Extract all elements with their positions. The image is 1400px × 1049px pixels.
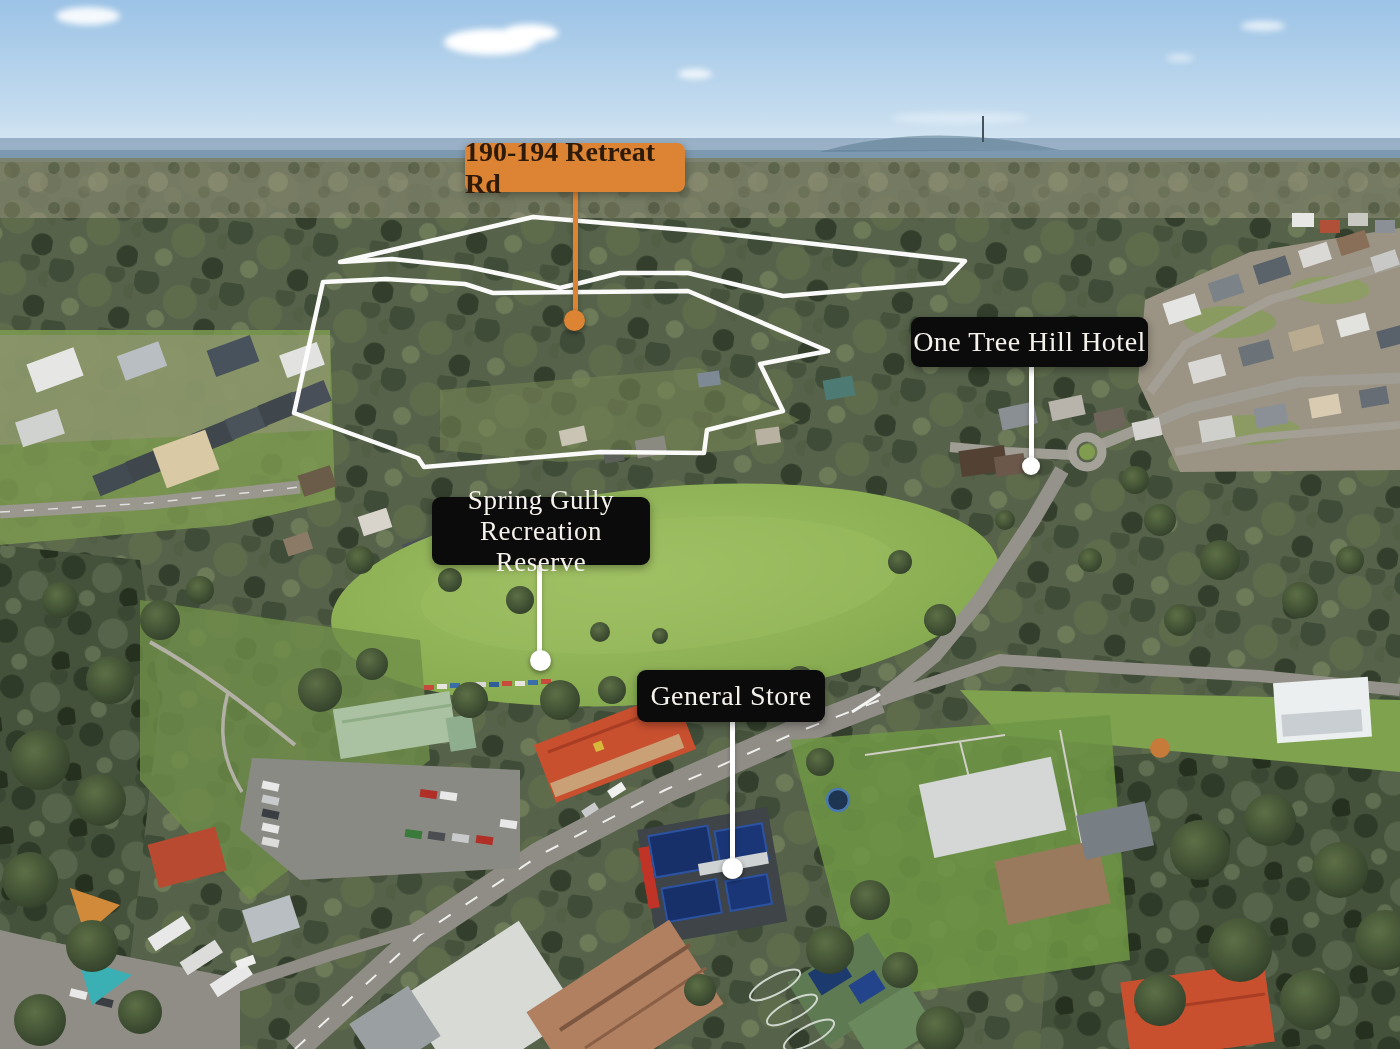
reserve-label-line1: Spring Gully xyxy=(468,485,614,516)
property-marker-line xyxy=(573,190,578,312)
sky xyxy=(0,0,1400,168)
store-marker-line xyxy=(730,720,735,862)
property-address-label: 190-194 Retreat Rd xyxy=(465,143,685,192)
hotel-label: One Tree Hill Hotel xyxy=(911,317,1148,367)
store-label-text: General Store xyxy=(650,680,811,712)
reserve-marker-dot xyxy=(530,650,551,671)
hotel-marker-line xyxy=(1029,365,1034,465)
property-marker-dot xyxy=(564,310,585,331)
hotel-marker-dot xyxy=(1022,457,1040,475)
general-store-building xyxy=(635,807,787,945)
property-address-text: 190-194 Retreat Rd xyxy=(465,136,685,200)
store-label: General Store xyxy=(637,670,825,722)
aerial-photo-background xyxy=(0,0,1400,1049)
store-marker-dot xyxy=(722,858,743,879)
reserve-label-line2: Recreation Reserve xyxy=(432,516,650,578)
hotel-label-text: One Tree Hill Hotel xyxy=(913,326,1146,358)
aerial-photo: 190-194 Retreat Rd One Tree Hill Hotel S… xyxy=(0,0,1400,1049)
reserve-label: Spring Gully Recreation Reserve xyxy=(432,497,650,565)
